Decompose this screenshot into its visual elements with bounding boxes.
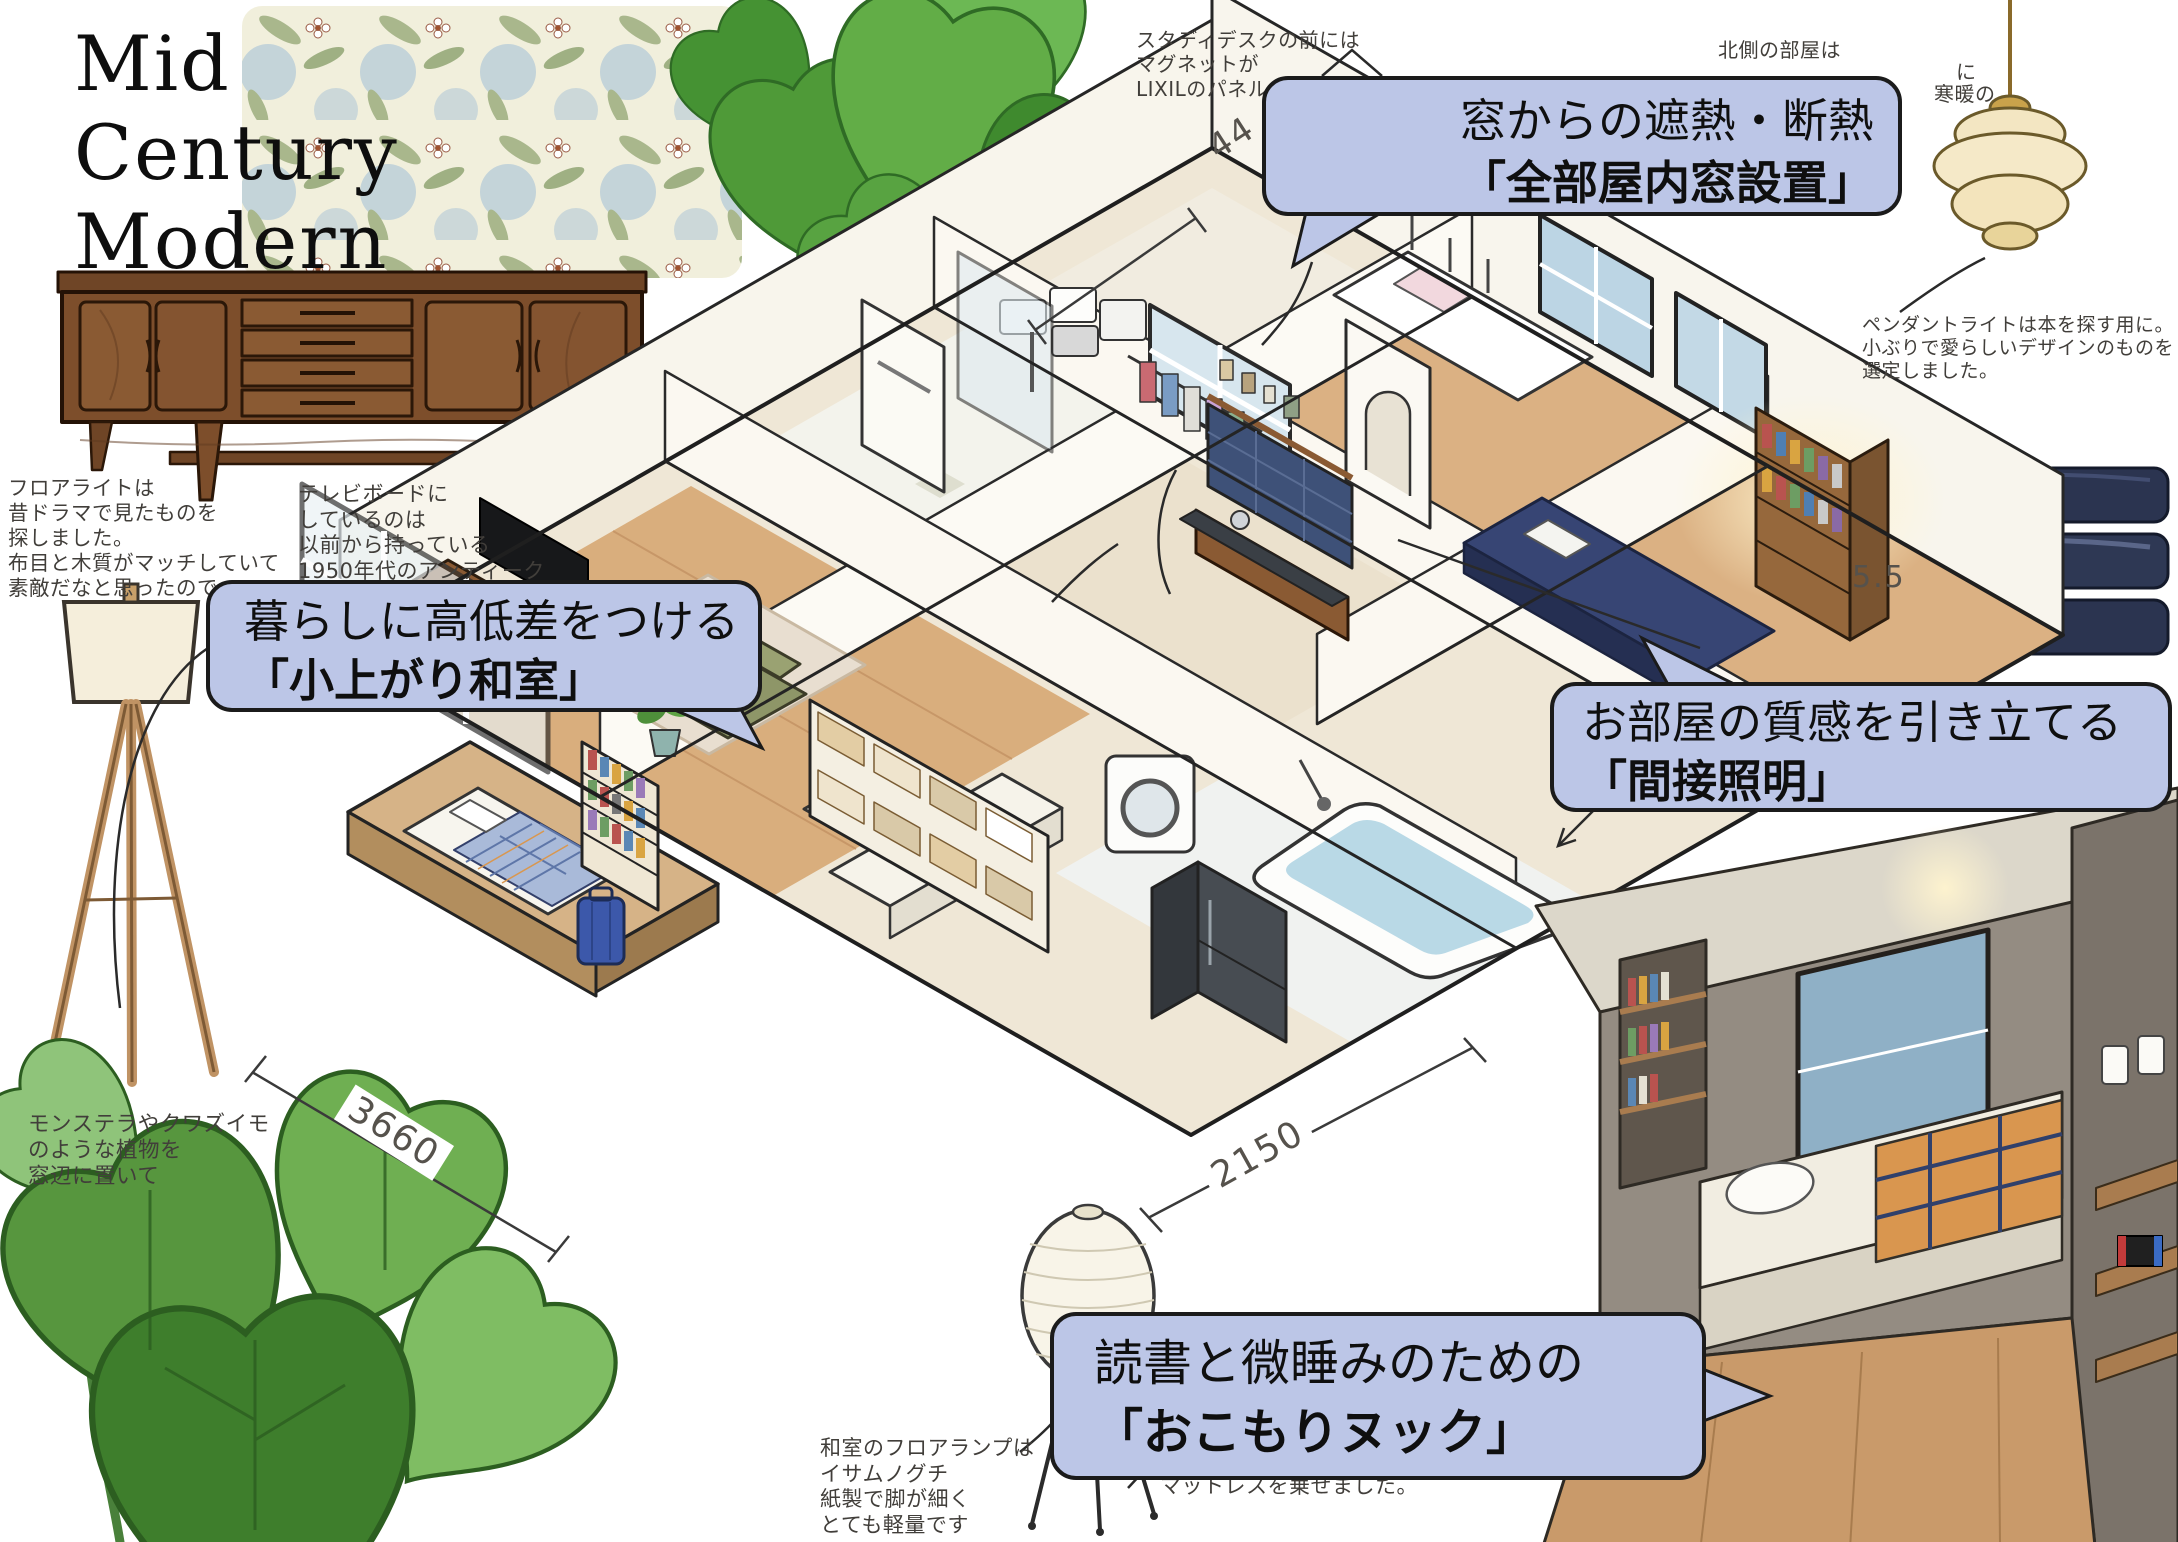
callout-tatami: 暮らしに高低差をつける 「小上がり和室」 <box>206 580 762 712</box>
note-tv-board: テレビボードに しているのは 以前から持っている 1950年代のアンティーク <box>298 482 545 584</box>
title-line-2: Century <box>74 109 399 198</box>
callout-lighting-line1: お部屋の質感を引き立てる <box>1582 694 2152 753</box>
monstera-leaves <box>0 1021 642 1542</box>
note-pendant-light: ペンダントライトは本を探す用に。 小ぶりで愛らしいデザインのものを 選定しました… <box>1862 314 2174 384</box>
title-line-3: Modern <box>74 198 399 287</box>
note-north-fragment-1: に <box>1956 60 1977 84</box>
callout-tatami-line1: 暮らしに高低差をつける <box>244 592 742 651</box>
pendant-light-illustration <box>1934 0 2086 250</box>
callout-tatami-line2: 「小上がり和室」 <box>244 651 742 710</box>
title-line-1: Mid <box>74 20 399 109</box>
callout-insulation-line1: 窓からの遮熱・断熱 <box>1286 90 1874 152</box>
note-north-room: 北側の部屋は <box>1718 38 1841 62</box>
callout-nook-line1: 読書と微睡みのための <box>1094 1330 1682 1399</box>
note-paper-lamp: 和室のフロアランプは イサムノグチ 紙製で脚が細く とても軽量です <box>820 1436 1034 1538</box>
callout-nook: 読書と微睡みのための 「おこもりヌック」 <box>1050 1312 1706 1480</box>
callout-nook-line2: 「おこもりヌック」 <box>1094 1399 1682 1468</box>
callout-insulation-line2: 「全部屋内窓設置」 <box>1286 152 1874 214</box>
note-north-fragment-2: 寒暖の <box>1934 82 1996 106</box>
suitcase <box>578 898 624 964</box>
callout-lighting: お部屋の質感を引き立てる 「間接照明」 <box>1550 682 2172 812</box>
switch-dock <box>2118 1236 2162 1266</box>
note-window-plants: モンステラやクワズイモ のような植物を 窓辺に置いて <box>28 1112 270 1191</box>
callout-insulation: 窓からの遮熱・断熱 「全部屋内窓設置」 <box>1262 76 1902 216</box>
floor-lamp-illustration <box>48 584 214 1082</box>
page-title: Mid Century Modern <box>74 20 399 287</box>
callout-lighting-line2: 「間接照明」 <box>1582 753 2152 812</box>
dimension-tile: 5.5 <box>1852 560 1906 595</box>
poster-canvas: Mid Century Modern スタディデスクの前には マグネットが LI… <box>0 0 2178 1542</box>
